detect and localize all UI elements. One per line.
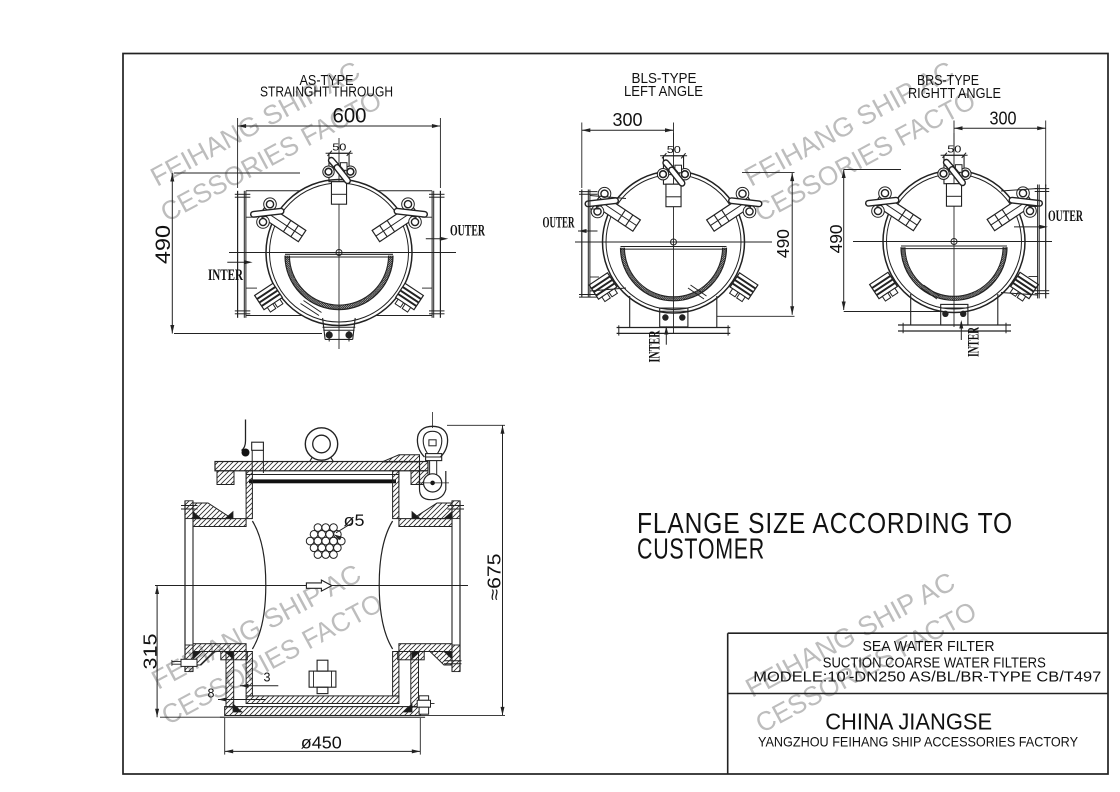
svg-text:ø5: ø5: [344, 511, 365, 530]
svg-text:8: 8: [208, 687, 215, 701]
svg-text:3: 3: [264, 671, 271, 685]
svg-text:INTER: INTER: [208, 267, 244, 284]
svg-text:300: 300: [613, 110, 643, 130]
svg-text:STRAINGHT THROUGH: STRAINGHT THROUGH: [260, 84, 393, 101]
svg-text:LEFT ANGLE: LEFT ANGLE: [624, 83, 703, 100]
svg-text:490: 490: [152, 225, 175, 264]
svg-text:OUTER: OUTER: [450, 223, 486, 240]
svg-text:SEA WATER FILTER: SEA WATER FILTER: [863, 639, 995, 655]
svg-text:≈675: ≈675: [484, 554, 504, 601]
svg-text:CUSTOMER: CUSTOMER: [637, 534, 765, 566]
svg-text:RIGHTT ANGLE: RIGHTT ANGLE: [908, 85, 1001, 102]
svg-text:ø450: ø450: [301, 733, 342, 753]
svg-text:YANGZHOU FEIHANG SHIP ACCESSOR: YANGZHOU FEIHANG SHIP ACCESSORIES FACTOR…: [758, 734, 1079, 750]
svg-text:490: 490: [773, 229, 793, 258]
svg-text:MODELE:10'-DN250 AS/BL/BR-TYP: MODELE:10'-DN250 AS/BL/BR-TYPE CB/T497: [753, 670, 1101, 686]
svg-text:490: 490: [826, 224, 846, 253]
svg-text:INTER: INTER: [647, 330, 664, 363]
svg-text:INTER: INTER: [966, 327, 983, 357]
svg-text:600: 600: [333, 105, 367, 128]
svg-text:300: 300: [990, 109, 1017, 129]
svg-text:315: 315: [140, 634, 160, 670]
svg-text:OUTER: OUTER: [1048, 208, 1084, 225]
svg-text:CHINA JIANGSE: CHINA JIANGSE: [825, 709, 992, 735]
svg-text:OUTER: OUTER: [543, 215, 575, 232]
